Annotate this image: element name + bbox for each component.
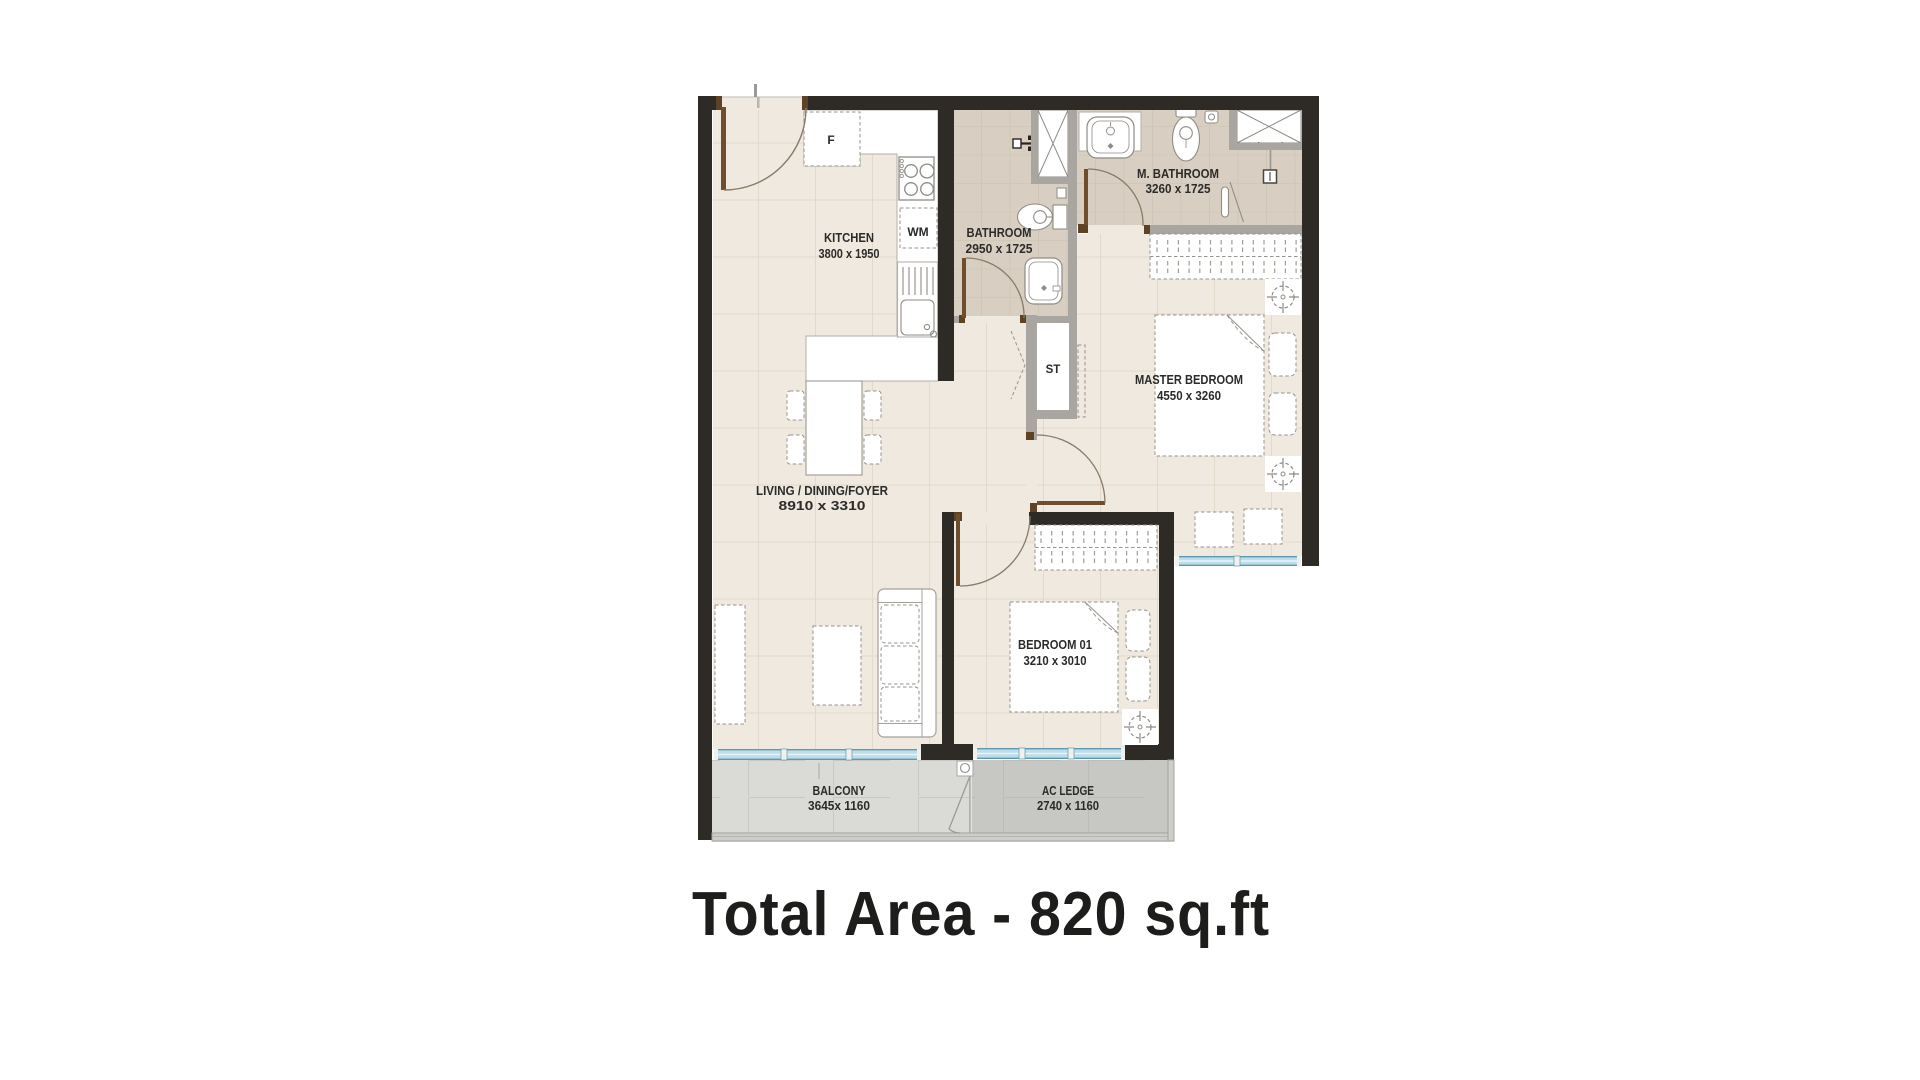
svg-text:M. BATHROOM: M. BATHROOM <box>1137 167 1219 181</box>
svg-text:BATHROOM: BATHROOM <box>967 226 1032 240</box>
svg-text:AC LEDGE: AC LEDGE <box>1042 784 1094 798</box>
svg-text:ST: ST <box>1046 364 1061 376</box>
svg-text:KITCHEN: KITCHEN <box>824 231 874 245</box>
svg-text:Total Area - 820 sq.ft: Total Area - 820 sq.ft <box>692 879 1270 949</box>
svg-text:2950 x 1725: 2950 x 1725 <box>966 242 1033 256</box>
svg-text:3260 x 1725: 3260 x 1725 <box>1146 182 1211 196</box>
svg-text:3210 x 3010: 3210 x 3010 <box>1024 654 1087 668</box>
svg-text:WM: WM <box>907 225 928 239</box>
svg-text:LIVING / DINING/FOYER: LIVING / DINING/FOYER <box>756 484 888 498</box>
svg-text:3800 x 1950: 3800 x 1950 <box>819 247 880 261</box>
svg-text:2740 x 1160: 2740 x 1160 <box>1037 799 1099 813</box>
svg-text:F: F <box>827 133 834 147</box>
svg-text:BALCONY: BALCONY <box>813 784 867 798</box>
svg-text:8910 x 3310: 8910 x 3310 <box>779 499 866 513</box>
svg-text:3645x 1160: 3645x 1160 <box>808 799 870 813</box>
svg-text:MASTER BEDROOM: MASTER BEDROOM <box>1135 373 1243 387</box>
svg-text:BEDROOM 01: BEDROOM 01 <box>1018 638 1092 652</box>
svg-text:4550 x 3260: 4550 x 3260 <box>1157 389 1221 403</box>
